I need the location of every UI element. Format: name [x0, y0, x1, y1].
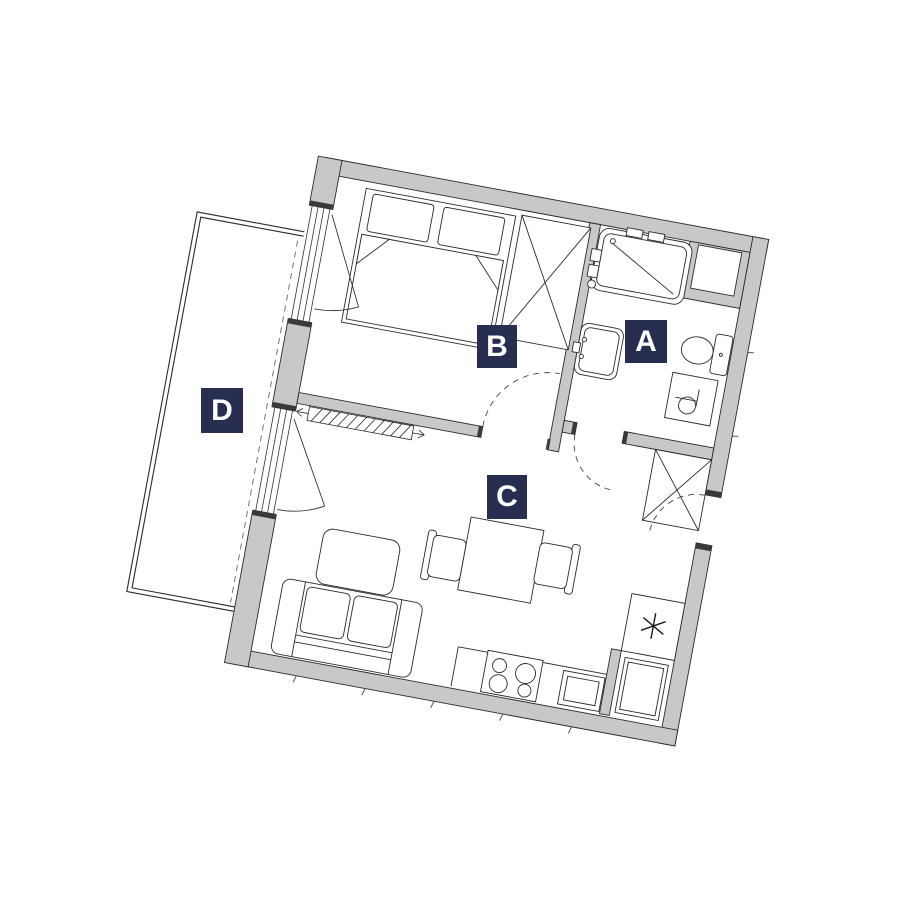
dining-chair-left — [420, 530, 467, 586]
room-label-living-room: C — [487, 475, 527, 519]
bathroom-door-arc — [566, 435, 622, 491]
bedroom-door-arc — [483, 362, 560, 439]
floorplan-canvas — [0, 0, 900, 900]
fridge — [615, 657, 668, 720]
floorplan-page: A B C D — [0, 0, 900, 900]
toilet — [678, 328, 733, 376]
washing-machine — [665, 372, 719, 426]
dining-table — [458, 517, 544, 603]
hob — [480, 650, 543, 702]
dining-chair-right — [532, 538, 580, 594]
room-label-bedroom: B — [477, 325, 517, 368]
room-label-balcony: D — [201, 388, 243, 433]
kitchen-sink — [558, 670, 605, 711]
room-label-bathroom: A — [625, 320, 667, 363]
